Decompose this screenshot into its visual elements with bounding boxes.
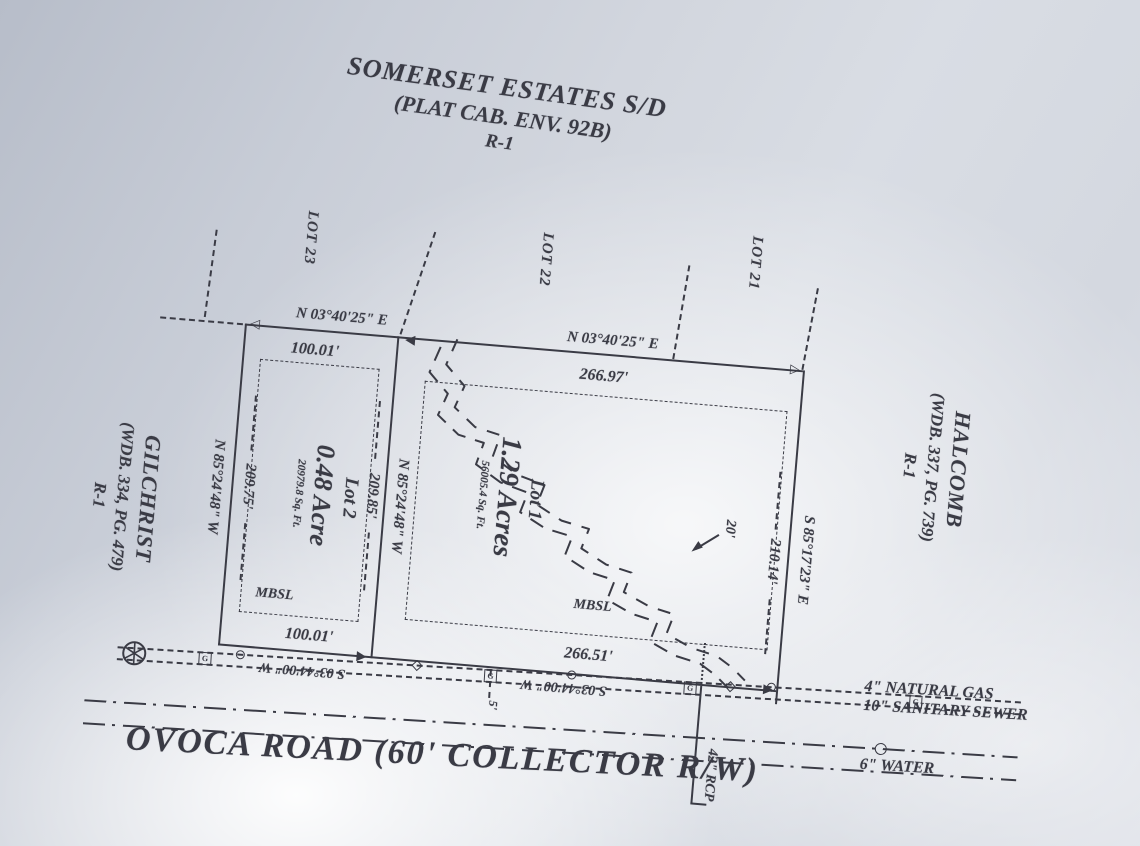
- neighbor-east-block: HALCOMB (WDB. 337, PG. 739) R-1: [893, 390, 977, 545]
- water-label: 6" WATER: [859, 756, 935, 779]
- gas-marker-icon: G: [198, 652, 212, 666]
- utility-valve-icon: [567, 670, 577, 680]
- utility-valve-icon: [767, 682, 777, 692]
- road-name-label: OVOCA ROAD (60' COLLECTOR R/W): [125, 720, 760, 790]
- neighbor-west-block: GILCHRIST (WDB. 334, PG. 479) R-1: [83, 420, 167, 575]
- plat-drawing: SOMERSET ESTATES S/D (PLAT CAB. ENV. 92B…: [101, 57, 1140, 846]
- utility-offset-label: 5': [485, 700, 501, 710]
- centerline-monument-icon: [874, 743, 887, 756]
- offset-tick: [488, 670, 492, 698]
- utility-fitting-icon: [411, 660, 422, 671]
- road-utility-group: G G G G 4" NATURAL GAS 10" SANITARY SEWE…: [105, 58, 1140, 846]
- plat-photo-sheet: SOMERSET ESTATES S/D (PLAT CAB. ENV. 92B…: [0, 0, 1140, 846]
- manhole-icon: [118, 637, 150, 669]
- gas-marker-icon: G: [683, 681, 697, 695]
- utility-valve-icon: [236, 650, 246, 660]
